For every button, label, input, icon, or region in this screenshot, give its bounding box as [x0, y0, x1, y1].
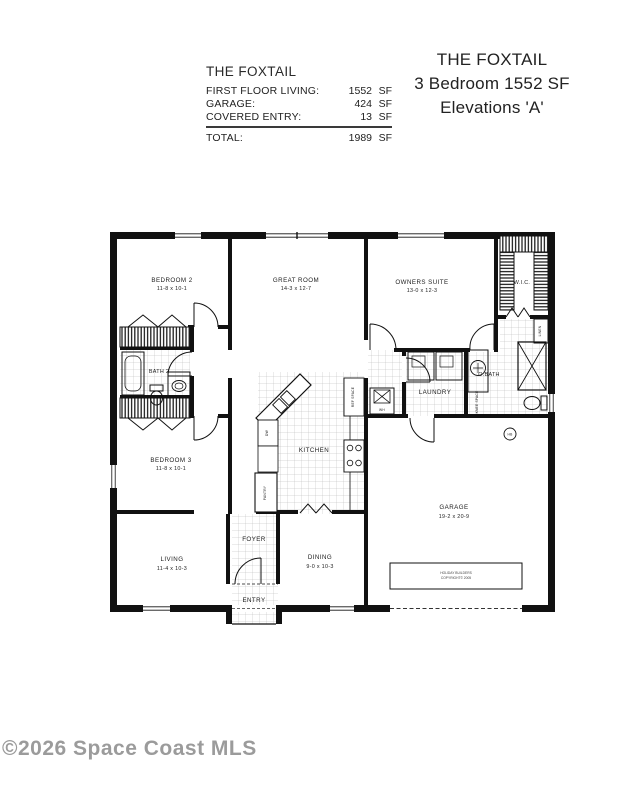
bedroom2-dims: 11-8 x 10-1: [157, 286, 187, 292]
bedroom3-closet-bifold: [128, 418, 186, 430]
owners-bath-door: [470, 324, 494, 350]
bedroom2-closet-bifold: [128, 315, 186, 327]
table-divider: [206, 126, 392, 128]
bath2-label: BATH 2: [149, 369, 169, 375]
bedroom3-dims: 11-8 x 10-1: [156, 466, 186, 472]
bedroom2-label: BEDROOM 2: [151, 277, 192, 284]
bedroom3-door: [194, 416, 218, 440]
obath-label: O.BATH: [478, 372, 499, 378]
pantry-label: PANTRY: [263, 485, 267, 500]
plan-subtitle: 3 Bedroom 1552 SF: [392, 72, 592, 96]
builder-stamp-line2: COPYRIGHT© 2005: [441, 576, 471, 580]
plan-elevation: Elevations 'A': [392, 96, 592, 120]
row-unit: SF: [372, 111, 392, 123]
floorplan-sheet: THE FOXTAIL FIRST FLOOR LIVING: 1552 SF …: [0, 0, 619, 790]
row-unit: SF: [372, 98, 392, 110]
ref-space-label: REF SPACE: [351, 386, 355, 407]
table-row: FIRST FLOOR LIVING: 1552 SF: [206, 85, 392, 97]
garage-entry-door: [410, 418, 434, 442]
dw-label: DW: [265, 429, 269, 436]
kitchen-label: KITCHEN: [299, 447, 329, 454]
great-room-dims: 14-3 x 12-7: [281, 286, 312, 292]
row-label: FIRST FLOOR LIVING:: [206, 85, 338, 97]
range: [344, 440, 364, 472]
laundry-label: LAUNDRY: [419, 389, 452, 396]
great-room-label: GREAT ROOM: [273, 277, 319, 284]
wic-label: W.I.C.: [514, 280, 530, 286]
bedroom3-label: BEDROOM 3: [150, 457, 191, 464]
entry-label: ENTRY: [242, 597, 265, 604]
bedroom2-door: [194, 303, 218, 327]
garage-label: GARAGE: [439, 504, 468, 511]
floor-plan-drawing: BEDROOM 2 11-8 x 10-1 GREAT ROOM 14-3 x …: [98, 222, 561, 627]
plan-title: THE FOXTAIL: [392, 48, 592, 72]
hb-label: HB: [508, 433, 514, 437]
table-row: COVERED ENTRY: 13 SF: [206, 111, 392, 123]
dining-dims: 9-0 x 10-3: [306, 564, 333, 570]
dining-label: DINING: [308, 554, 332, 561]
owners-suite-label: OWNERS SUITE: [395, 279, 448, 286]
total-label: TOTAL:: [206, 132, 338, 144]
living-dims: 11-4 x 10-3: [157, 566, 187, 572]
row-unit: SF: [372, 85, 392, 97]
wh-label: WH: [379, 408, 385, 412]
row-label: GARAGE:: [206, 98, 338, 110]
wic-shelf-top: [500, 236, 548, 252]
owners-suite-door: [370, 324, 396, 350]
total-unit: SF: [372, 132, 392, 144]
sqft-summary-table: THE FOXTAIL FIRST FLOOR LIVING: 1552 SF …: [206, 66, 392, 145]
builder-stamp-line1: HOLIDAY BUILDERS: [440, 571, 472, 575]
linen-label: LINEN: [538, 325, 542, 336]
garage-dims: 19-2 x 20-9: [439, 514, 470, 520]
owners-suite-dims: 13-0 x 12-3: [407, 288, 438, 294]
foyer-label: FOYER: [242, 536, 266, 543]
table-total-row: TOTAL: 1989 SF: [206, 132, 392, 144]
plan-title-block: THE FOXTAIL 3 Bedroom 1552 SF Elevations…: [392, 48, 592, 120]
table-title: THE FOXTAIL: [206, 66, 392, 78]
total-value: 1989: [338, 132, 372, 144]
mls-watermark: ©2026 Space Coast MLS: [2, 737, 257, 761]
wic-shelf-left: [500, 252, 514, 310]
table-row: GARAGE: 424 SF: [206, 98, 392, 110]
row-value: 1552: [338, 85, 372, 97]
bedroom3-closet: [120, 398, 190, 418]
bedroom2-closet: [120, 327, 190, 347]
wic-shelf-right: [534, 252, 548, 310]
row-value: 424: [338, 98, 372, 110]
row-value: 13: [338, 111, 372, 123]
row-label: COVERED ENTRY:: [206, 111, 338, 123]
knee-space-label: KNEE SPACE: [475, 390, 479, 413]
living-label: LIVING: [161, 556, 184, 563]
